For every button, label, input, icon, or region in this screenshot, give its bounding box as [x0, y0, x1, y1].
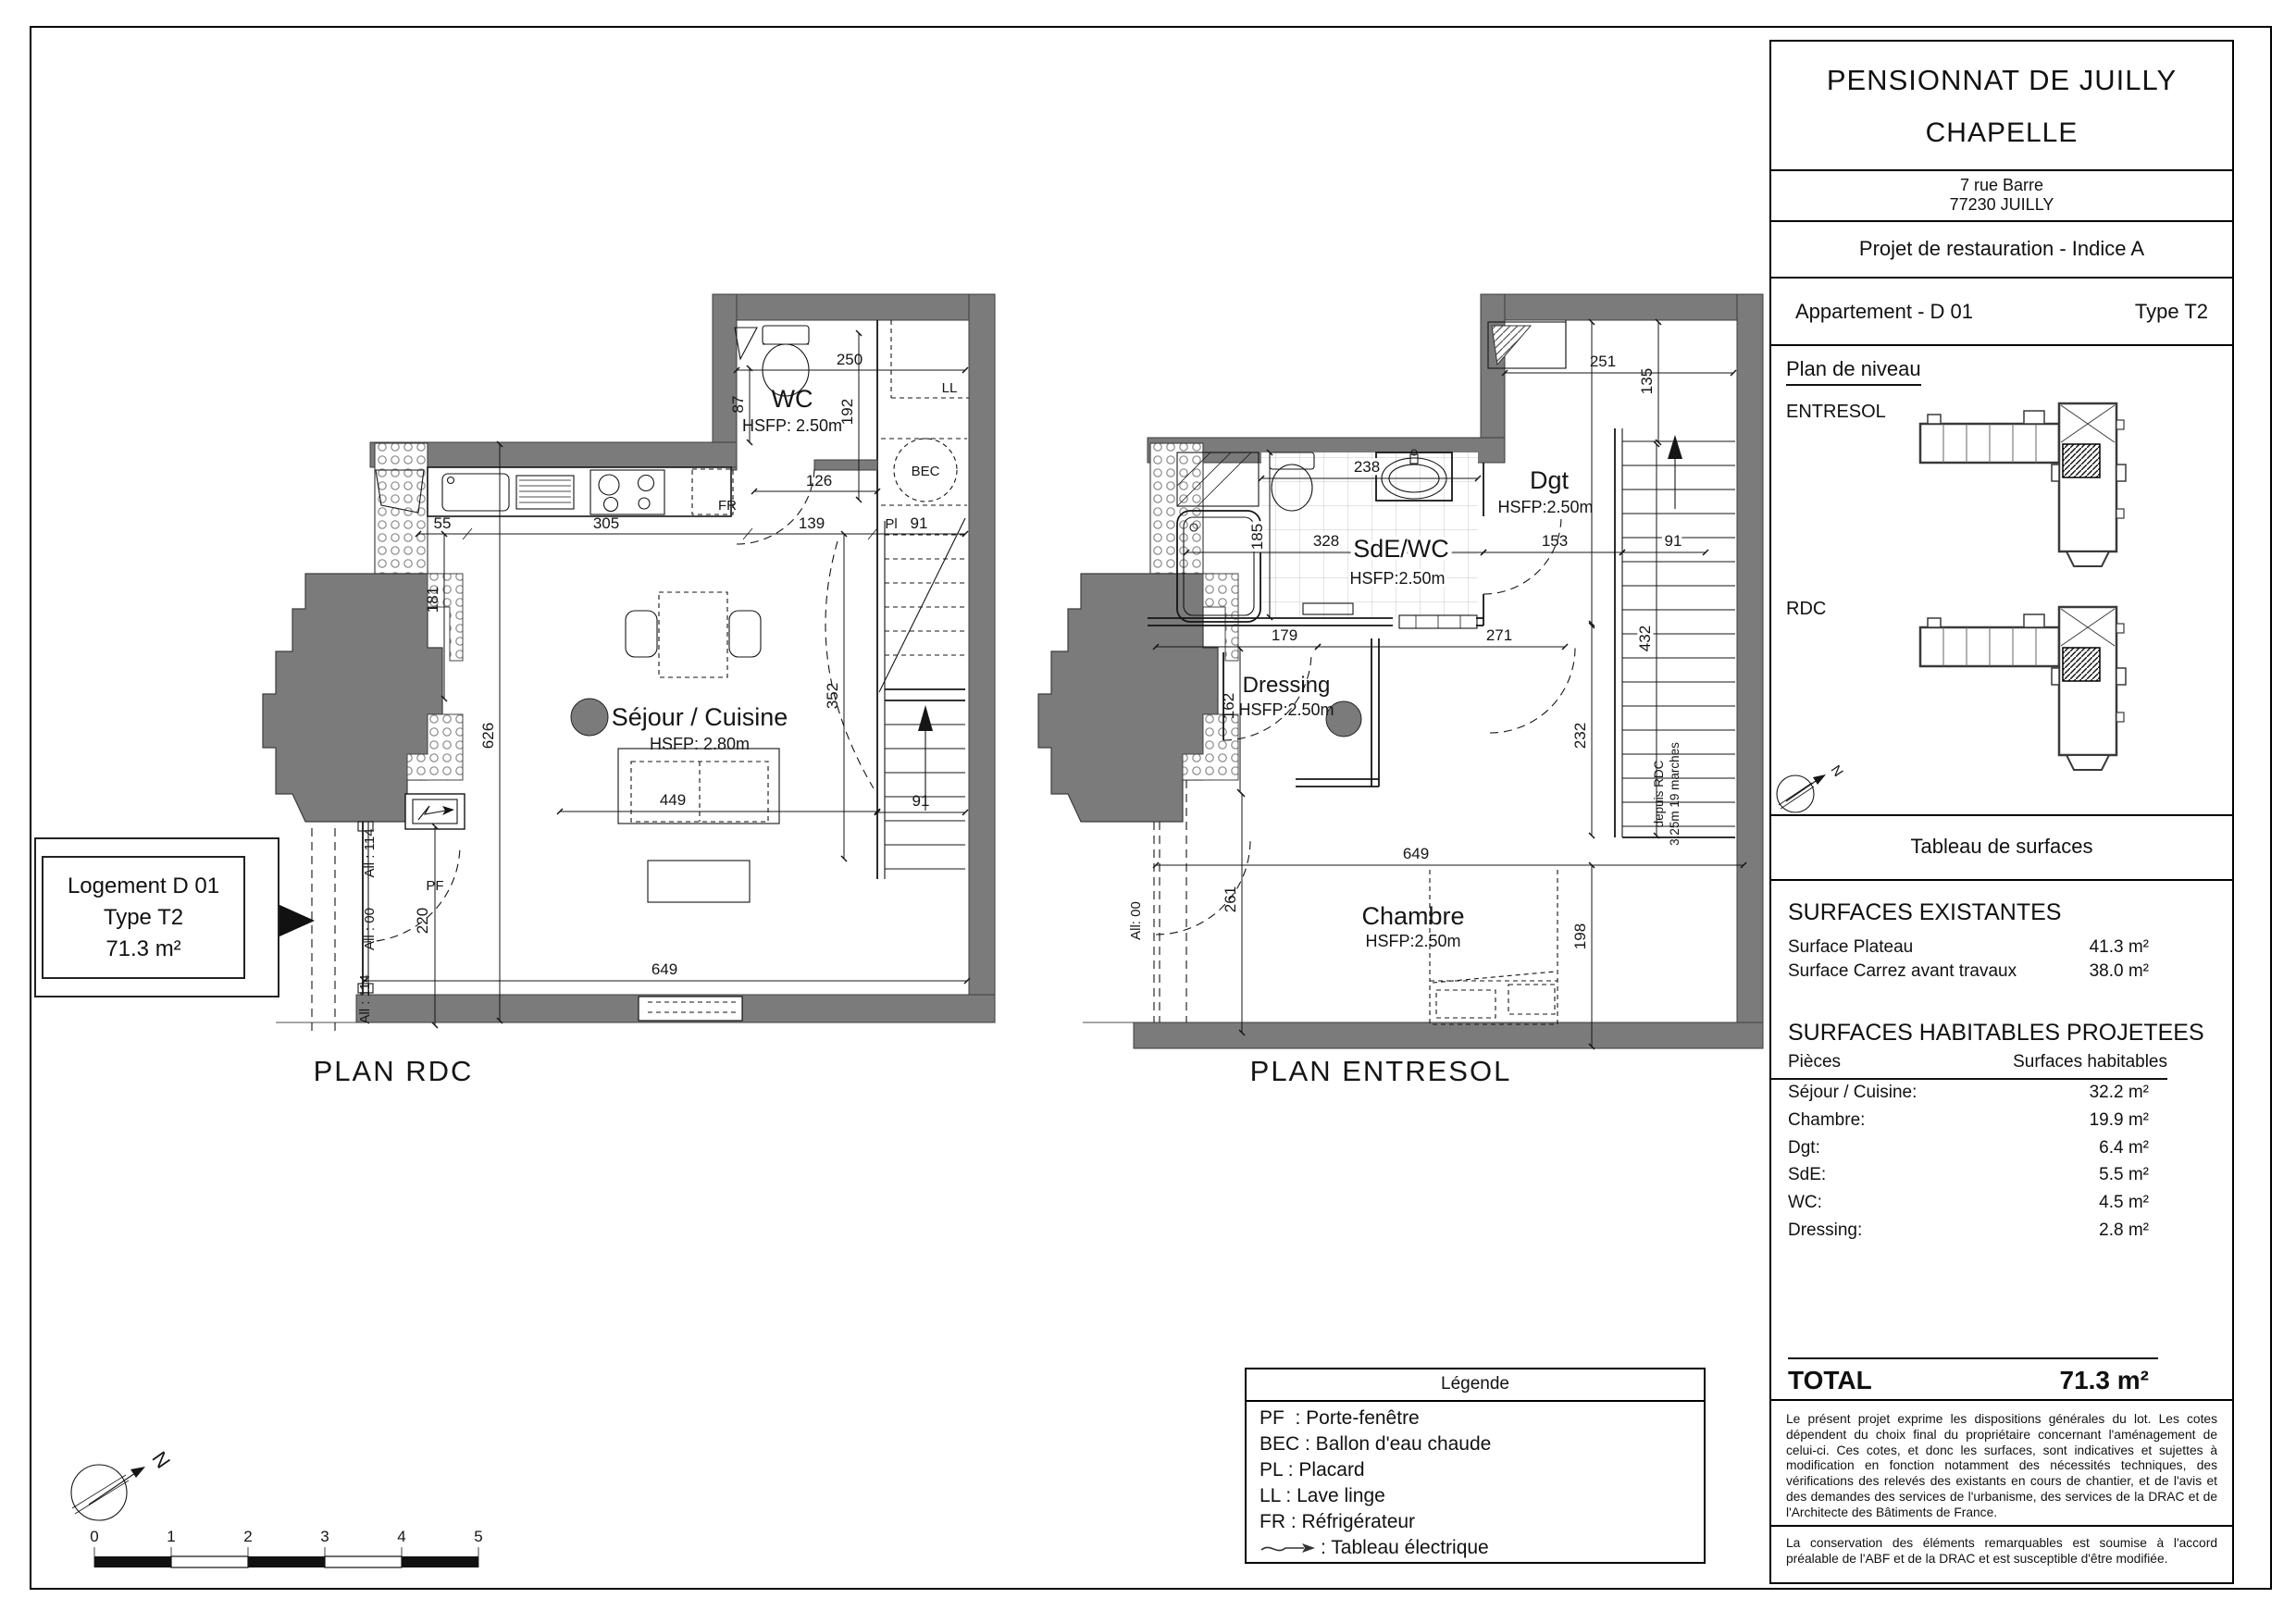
- apartment-type: Type T2: [2135, 300, 2208, 324]
- electrical-arrow-icon: [1260, 1540, 1321, 1556]
- surface-table-title: Tableau de surfaces: [1771, 816, 2232, 881]
- legend-box: Légende PF : Porte-fenêtre BEC : Ballon …: [1245, 1368, 1706, 1564]
- logement-type: Type T2: [104, 902, 183, 934]
- legend-items: PF : Porte-fenêtre BEC : Ballon d'eau ch…: [1247, 1402, 1704, 1535]
- disclaimer-1: Le présent projet exprime les dispositio…: [1771, 1405, 2232, 1529]
- address-line2: 77230 JUILLY: [1771, 195, 2232, 215]
- projected-row: Dgt: 6.4 m²: [1771, 1138, 2232, 1158]
- projected-row: Dressing: 2.8 m²: [1771, 1220, 2232, 1241]
- level-label-entresol: ENTRESOL: [1786, 402, 1886, 423]
- room-label: Chambre:: [1788, 1110, 1865, 1131]
- disclaimer-2: La conservation des éléments remarquable…: [1771, 1529, 2232, 1575]
- level-plan-section: Plan de niveau ENTRESOL RDC: [1771, 346, 2232, 816]
- legend-title: Légende: [1247, 1369, 1704, 1402]
- surfaces-section: SURFACES EXISTANTES Surface Plateau 41.3…: [1771, 881, 2232, 1582]
- existing-surfaces-title: SURFACES EXISTANTES: [1788, 899, 2061, 926]
- room-label: Dgt:: [1788, 1138, 1820, 1158]
- projected-row: Séjour / Cuisine: 32.2 m²: [1771, 1083, 2232, 1103]
- projected-row: SdE: 5.5 m²: [1771, 1165, 2232, 1185]
- project-title: PENSIONNAT DE JUILLY: [1771, 64, 2232, 97]
- room-value: 4.5 m²: [2099, 1193, 2149, 1213]
- existing-row: Surface Plateau 41.3 m²: [1771, 937, 2232, 958]
- room-value: 2.8 m²: [2099, 1220, 2149, 1241]
- apartment-id: Appartement - D 01: [1795, 300, 1973, 324]
- total-overline: [1788, 1357, 2158, 1359]
- total-row: TOTAL 71.3 m²: [1771, 1366, 2232, 1395]
- room-value: 32.2 m²: [2090, 1083, 2149, 1103]
- logement-label: Logement D 01 Type T2 71.3 m²: [42, 856, 245, 979]
- room-label: WC:: [1788, 1193, 1822, 1213]
- room-label: SdE:: [1788, 1165, 1826, 1185]
- surface-label: Surface Plateau: [1788, 937, 1913, 958]
- architectural-drawing-page: 250 87 192 126 55 305 139 91 181 626 352…: [0, 0, 2296, 1623]
- divider: [1771, 1399, 2232, 1401]
- level-plan-title: Plan de niveau: [1786, 357, 1921, 386]
- room-label: Dressing:: [1788, 1220, 1862, 1241]
- address-line1: 7 rue Barre: [1771, 176, 2232, 195]
- project-subtitle: CHAPELLE: [1771, 118, 2232, 149]
- level-label-rdc: RDC: [1786, 599, 1826, 620]
- existing-row: Surface Carrez avant travaux 38.0 m²: [1771, 961, 2232, 982]
- projected-row: WC: 4.5 m²: [1771, 1193, 2232, 1213]
- room-value: 5.5 m²: [2099, 1165, 2149, 1185]
- apartment-section: Appartement - D 01 Type T2: [1771, 279, 2232, 346]
- legend-electrical-row: : Tableau électrique: [1247, 1535, 1704, 1559]
- total-label: TOTAL: [1788, 1366, 1872, 1395]
- surface-value: 38.0 m²: [2090, 961, 2149, 982]
- col-surfaces: Surfaces habitables: [2013, 1052, 2167, 1072]
- surface-label: Surface Carrez avant travaux: [1788, 961, 2017, 982]
- logement-name: Logement D 01: [68, 871, 219, 902]
- surface-value: 41.3 m²: [2090, 937, 2149, 958]
- title-section: PENSIONNAT DE JUILLY CHAPELLE: [1771, 42, 2232, 171]
- divider: [1771, 1525, 2232, 1527]
- col-rooms: Pièces: [1788, 1052, 1841, 1072]
- logement-area: 71.3 m²: [105, 934, 180, 965]
- room-value: 6.4 m²: [2099, 1138, 2149, 1158]
- room-value: 19.9 m²: [2090, 1110, 2149, 1131]
- legend-electrical-label: : Tableau électrique: [1321, 1537, 1489, 1559]
- logement-tag-box: Logement D 01 Type T2 71.3 m²: [34, 837, 279, 997]
- projected-surfaces-title: SURFACES HABITABLES PROJETEES: [1788, 1020, 2204, 1047]
- project-phase: Projet de restauration - Indice A: [1771, 222, 2232, 279]
- address-section: 7 rue Barre 77230 JUILLY: [1771, 171, 2232, 222]
- title-block: PENSIONNAT DE JUILLY CHAPELLE 7 rue Barr…: [1769, 40, 2234, 1584]
- total-value: 71.3 m²: [2060, 1366, 2150, 1395]
- projected-row: Chambre: 19.9 m²: [1771, 1110, 2232, 1131]
- room-label: Séjour / Cuisine:: [1788, 1083, 1917, 1103]
- surfaces-header-row: Pièces Surfaces habitables: [1771, 1052, 2167, 1080]
